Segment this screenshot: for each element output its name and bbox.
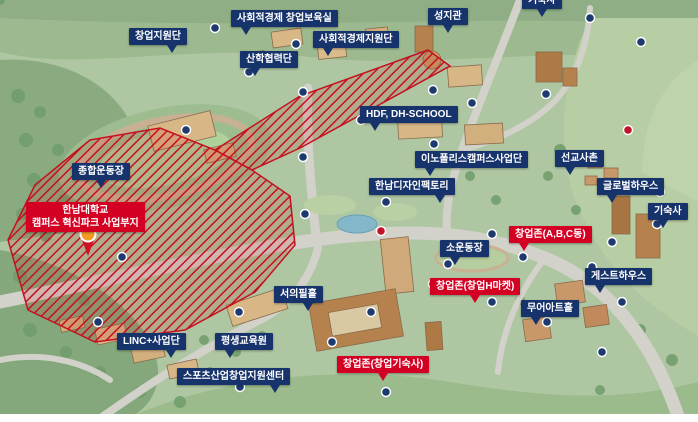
map-label-startup-support: 창업지원단 (129, 28, 187, 45)
map-label-lifelong-education: 평생교육원 (215, 333, 273, 350)
map-label-social-economy-support: 사회적경제지원단 (313, 31, 399, 48)
campus-map: 사회적경제 창업보육실 사회적경제지원단 성지관 기숙사 창업지원단 산학협력단… (0, 0, 698, 422)
map-label-dormitory-right: 기숙사 (648, 203, 688, 220)
map-label-startup-zone-abc: 창업존(A,B,C동) (509, 226, 592, 243)
map-label-innopolis-campus: 이노폴리스캠퍼스사업단 (415, 151, 528, 168)
map-label-industry-cooperation: 산학협력단 (240, 51, 298, 68)
map-label-dormitory-top: 기숙사 (522, 0, 562, 9)
map-label-design-factory: 한남디자인팩토리 (369, 178, 455, 195)
map-label-startup-zone-h-market: 창업존(창업H마켓) (430, 278, 520, 295)
map-label-hdf-dh-school: HDF, DH-SCHOOL (360, 106, 458, 123)
map-label-missionary-village: 선교사촌 (555, 150, 604, 167)
map-label-main-stadium: 종합운동장 (72, 163, 130, 180)
innovation-park-line2: 캠퍼스 혁신파크 사업부지 (32, 217, 139, 230)
map-label-startup-zone-dorm: 창업존(창업기숙사) (337, 356, 429, 373)
bottom-margin (0, 414, 698, 422)
map-label-seongjigwan: 성지관 (428, 8, 468, 25)
map-label-small-field: 소운동장 (440, 240, 489, 257)
garden (304, 195, 356, 215)
map-label-social-economy-incubator: 사회적경제 창업보육실 (231, 10, 338, 27)
map-label-sports-startup-center: 스포츠산업창업지원센터 (177, 368, 290, 385)
garden (373, 203, 417, 221)
map-label-global-house: 글로벌하우스 (597, 178, 664, 195)
map-label-innovation-park: 한남대학교 캠퍼스 혁신파크 사업부지 (26, 202, 145, 232)
pond (337, 215, 377, 233)
map-label-linc-plus: LINC+사업단 (117, 333, 186, 350)
innovation-park-line1: 한남대학교 (32, 204, 139, 217)
map-label-guest-house: 게스트하우스 (585, 268, 652, 285)
map-label-seouipil-hall: 서의필홀 (274, 286, 323, 303)
map-label-moore-art-hall: 무어아트홀 (521, 300, 579, 317)
